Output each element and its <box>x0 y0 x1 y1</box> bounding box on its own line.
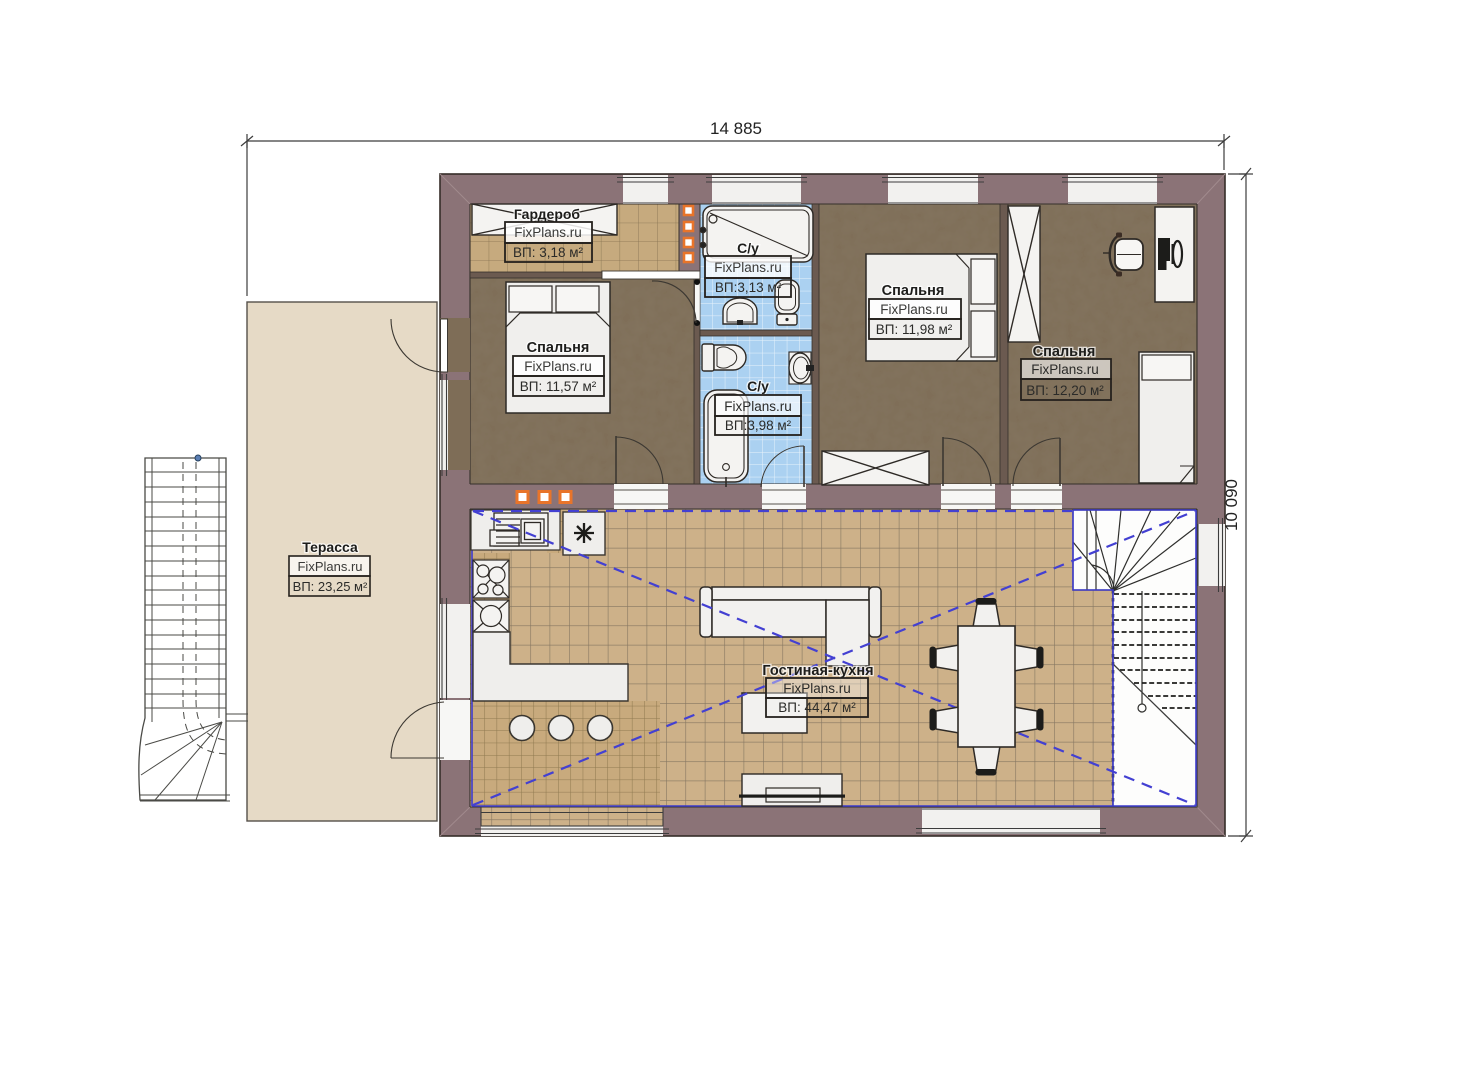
svg-text:FixPlans.ru: FixPlans.ru <box>514 225 582 240</box>
svg-text:С/у: С/у <box>747 378 769 394</box>
svg-text:ВП: 44,47 м²: ВП: 44,47 м² <box>778 700 856 715</box>
svg-text:ВП: 12,20 м²: ВП: 12,20 м² <box>1026 383 1104 398</box>
svg-text:FixPlans.ru: FixPlans.ru <box>714 260 782 275</box>
svg-text:Спальня: Спальня <box>1033 344 1096 360</box>
svg-text:FixPlans.ru: FixPlans.ru <box>524 359 592 374</box>
svg-text:FixPlans.ru: FixPlans.ru <box>1031 362 1099 377</box>
svg-text:FixPlans.ru: FixPlans.ru <box>724 399 792 414</box>
svg-text:Спальня: Спальня <box>527 340 590 356</box>
svg-text:14 885: 14 885 <box>710 119 762 138</box>
svg-text:ВП:3,98 м²: ВП:3,98 м² <box>725 418 792 433</box>
svg-text:FixPlans.ru: FixPlans.ru <box>297 559 362 574</box>
svg-text:С/у: С/у <box>737 240 759 256</box>
svg-text:FixPlans.ru: FixPlans.ru <box>880 302 948 317</box>
svg-text:ВП: 11,98 м²: ВП: 11,98 м² <box>876 322 953 337</box>
svg-text:Терасса: Терасса <box>302 539 358 555</box>
svg-text:ВП: 11,57 м²: ВП: 11,57 м² <box>520 379 597 394</box>
svg-text:ВП: 23,25 м²: ВП: 23,25 м² <box>293 579 368 594</box>
svg-text:Гардероб: Гардероб <box>514 206 581 222</box>
svg-text:ВП: 3,18 м²: ВП: 3,18 м² <box>513 245 584 260</box>
svg-text:Спальня: Спальня <box>882 283 945 299</box>
svg-text:FixPlans.ru: FixPlans.ru <box>783 681 851 696</box>
svg-text:ВП:3,13 м²: ВП:3,13 м² <box>715 280 782 295</box>
svg-text:Гостиная-кухня: Гостиная-кухня <box>762 663 873 679</box>
